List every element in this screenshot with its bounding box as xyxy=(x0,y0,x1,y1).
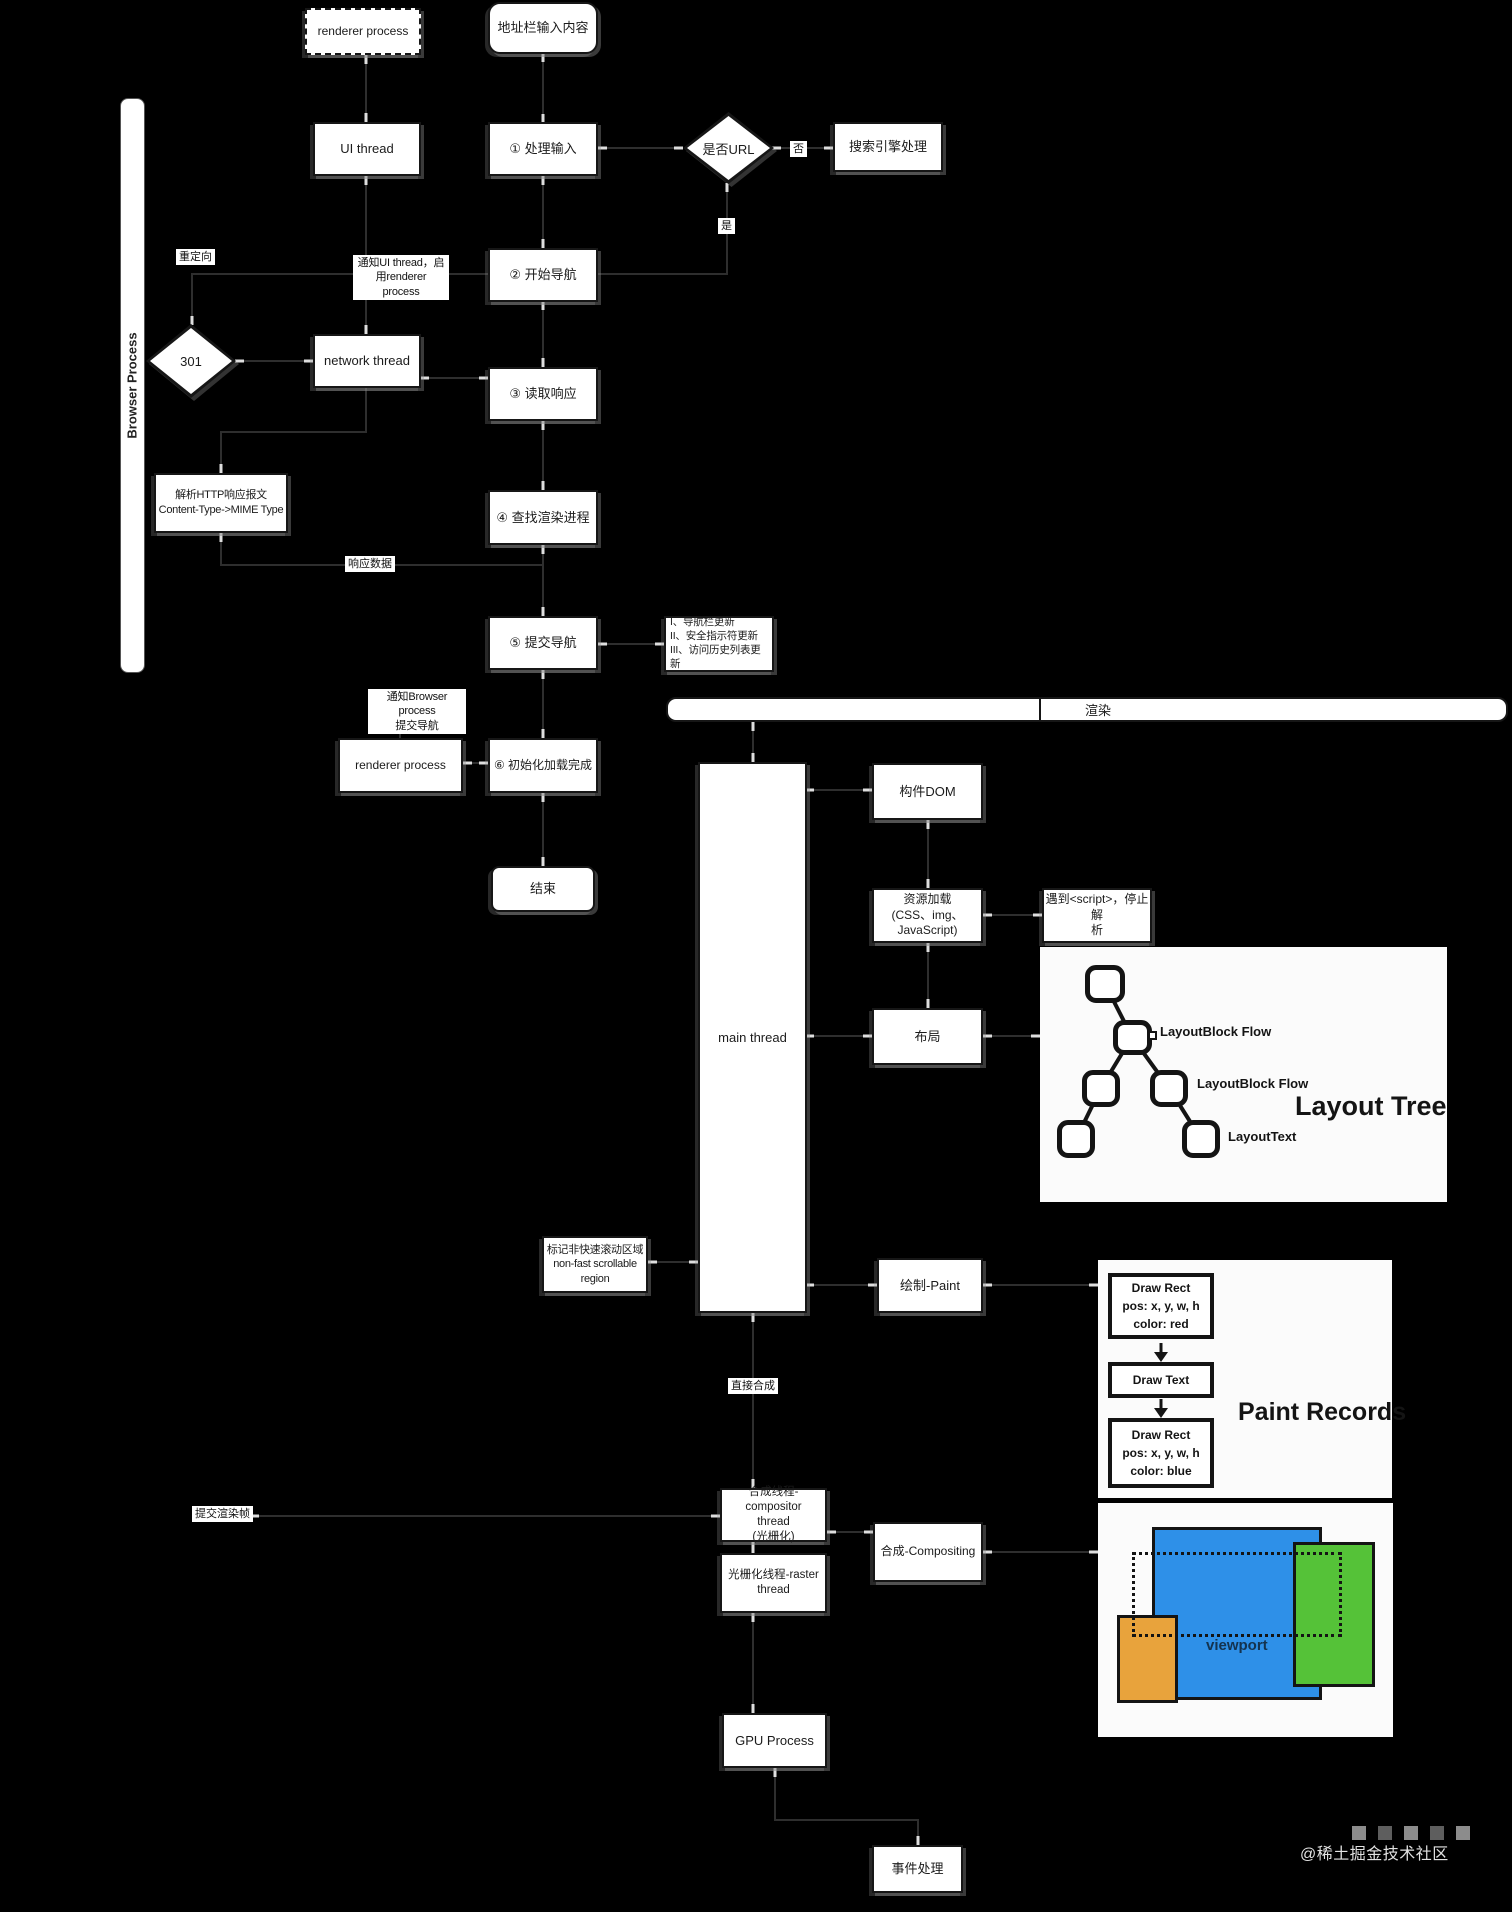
layout-tree-node xyxy=(1057,1120,1095,1158)
node-renderer-process-top: renderer process xyxy=(305,8,421,55)
paint-records-panel: Draw Rect pos: x, y, w, h color: red Dra… xyxy=(1098,1260,1392,1498)
node-network-thread: network thread xyxy=(313,334,421,388)
node-paint: 绘制-Paint xyxy=(877,1258,983,1313)
bar-divider xyxy=(1039,699,1041,720)
node-script-stop-parsing: 遇到<script>，停止解 析 xyxy=(1042,888,1152,943)
node-build-dom: 构件DOM xyxy=(872,763,983,820)
label-direct-compositing: 直接合成 xyxy=(728,1378,778,1394)
node-step5-commit-navigation: ⑤ 提交导航 xyxy=(488,616,598,670)
node-step6-init-load-complete: ⑥ 初始化加载完成 xyxy=(488,738,598,793)
node-search-engine: 搜索引擎处理 xyxy=(833,122,943,172)
node-step3-read-response: ③ 读取响应 xyxy=(488,367,598,421)
node-step2-start-navigation: ② 开始导航 xyxy=(488,248,598,302)
paint-records-title: Paint Records xyxy=(1238,1398,1406,1427)
node-raster-thread: 光栅化线程-raster thread xyxy=(720,1553,827,1613)
render-stage-label: 渲染 xyxy=(1085,699,1111,720)
browser-process-lane: Browser Process xyxy=(120,98,145,673)
viewport-label: viewport xyxy=(1206,1637,1268,1654)
label-response-data: 响应数据 xyxy=(345,556,395,572)
layout-tree-node xyxy=(1182,1120,1220,1158)
node-parse-http-response: 解析HTTP响应报文 Content-Type->MIME Type xyxy=(154,473,288,533)
label-yes: 是 xyxy=(718,218,735,234)
node-compositing: 合成-Compositing xyxy=(873,1522,983,1582)
layout-tree-node xyxy=(1082,1070,1120,1107)
node-gpu-process: GPU Process xyxy=(722,1713,827,1768)
node-resource-loading: 资源加载 (CSS、img、 JavaScript) xyxy=(872,888,983,943)
label-notify-browser-process: 通知Browser process 提交导航 xyxy=(368,689,466,734)
viewport-panel: viewport xyxy=(1098,1503,1393,1737)
is-url-text: 是否URL xyxy=(683,112,774,184)
node-step4-find-renderer: ④ 查找渲染进程 xyxy=(488,490,598,545)
node-non-fast-scrollable-region: 标记非快速滚动区域 non-fast scrollable region xyxy=(542,1236,648,1293)
layout-tree-label-1: LayoutBlock Flow xyxy=(1160,1024,1271,1039)
paint-record-draw-text: Draw Text xyxy=(1108,1362,1214,1398)
browser-process-label: Browser Process xyxy=(125,332,140,438)
layout-tree-title: Layout Tree xyxy=(1295,1091,1447,1122)
watermark-text: @稀土掘金技术社区 xyxy=(1300,1840,1449,1864)
node-browser-ui-updates: I、导航栏更新 II、安全指示符更新 III、访问历史列表更新 xyxy=(664,616,774,672)
label-notify-ui-thread: 通知UI thread，启 用renderer process xyxy=(353,255,449,300)
layout-tree-label-3: LayoutText xyxy=(1228,1129,1296,1144)
node-layout: 布局 xyxy=(872,1008,983,1065)
layout-tree-node xyxy=(1113,1020,1152,1055)
label-no: 否 xyxy=(790,141,807,157)
node-renderer-process: renderer process xyxy=(338,738,463,793)
layout-tree-node xyxy=(1150,1070,1188,1107)
node-compositor-thread: 合成线程-compositor thread (光栅化) xyxy=(720,1488,827,1542)
node-end: 结束 xyxy=(491,866,595,912)
node-event-handling: 事件处理 xyxy=(872,1845,963,1893)
301-text: 301 xyxy=(146,324,236,398)
node-main-thread: main thread xyxy=(698,762,807,1313)
node-step1-process-input: ① 处理输入 xyxy=(488,122,598,176)
node-is-url-decision: 是否URL xyxy=(683,112,774,184)
label-redirect: 重定向 xyxy=(176,249,215,265)
layout-tree-label-2: LayoutBlock Flow xyxy=(1197,1076,1308,1091)
node-ui-thread: UI thread xyxy=(313,122,421,176)
label-commit-render-frame: 提交渲染帧 xyxy=(192,1506,253,1522)
layout-tree-node xyxy=(1085,965,1125,1003)
node-anchor-square xyxy=(1148,1031,1157,1040)
layout-tree-panel: LayoutBlock Flow LayoutBlock Flow Layout… xyxy=(1040,947,1447,1202)
node-301-decision: 301 xyxy=(146,324,236,398)
paint-record-draw-rect-blue: Draw Rect pos: x, y, w, h color: blue xyxy=(1108,1418,1214,1488)
node-address-bar-input: 地址栏输入内容 xyxy=(488,2,598,54)
viewport-dotted-region xyxy=(1132,1552,1342,1637)
render-stage-bar: 渲染 xyxy=(666,697,1508,722)
flowchart-canvas: Browser Process renderer process 地址栏输入内容… xyxy=(0,0,1512,1912)
paint-record-draw-rect-red: Draw Rect pos: x, y, w, h color: red xyxy=(1108,1273,1214,1339)
